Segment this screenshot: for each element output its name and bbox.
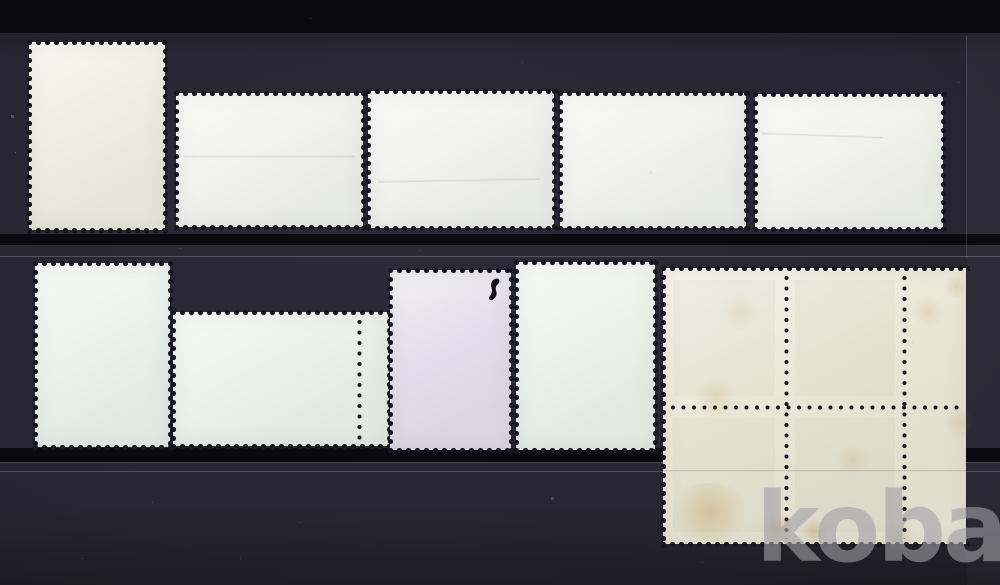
pen-squiggle-mark: [486, 278, 502, 304]
stockbook-photo: kobay: [0, 0, 1000, 585]
stamp-5: [755, 94, 943, 229]
stamp-7: [173, 312, 389, 446]
stamp-9: [516, 262, 655, 450]
stockpage-strip-top: [0, 0, 1000, 33]
toning-spot: [943, 276, 969, 298]
toning-spot: [665, 483, 753, 541]
toning-spot: [693, 378, 739, 418]
paper-crease: [184, 155, 355, 158]
paper-crease: [761, 132, 883, 139]
toning-spot: [758, 513, 796, 543]
sheet-margin-perforation-row: [356, 317, 363, 441]
stockpage-edge-line: [966, 36, 967, 258]
stamp-impression: [673, 418, 775, 532]
block-perforation-row: [668, 404, 961, 411]
dust-specks: [0, 0, 1, 1]
stamp-4: [560, 93, 746, 228]
stamp-3: [368, 91, 554, 228]
stamp-8: [390, 270, 511, 450]
stamp-block: [663, 268, 966, 544]
stamp-2: [176, 93, 363, 227]
page-right-column: [967, 0, 1000, 585]
stamp-impression: [795, 280, 895, 396]
stamp-1: [29, 42, 165, 230]
stamp-6: [35, 263, 170, 447]
toning-spot: [718, 296, 762, 330]
toning-spot: [799, 520, 829, 544]
stockpage-strip-middle: [0, 234, 1000, 245]
toning-spot: [911, 298, 945, 326]
stamp-impression: [795, 418, 895, 532]
block-crease-line: [663, 470, 966, 472]
stamp-impression: [673, 280, 775, 396]
stockpage-strip-edge-line-middle: [0, 256, 1000, 257]
paper-crease: [378, 178, 540, 184]
toning-spot: [878, 523, 918, 549]
